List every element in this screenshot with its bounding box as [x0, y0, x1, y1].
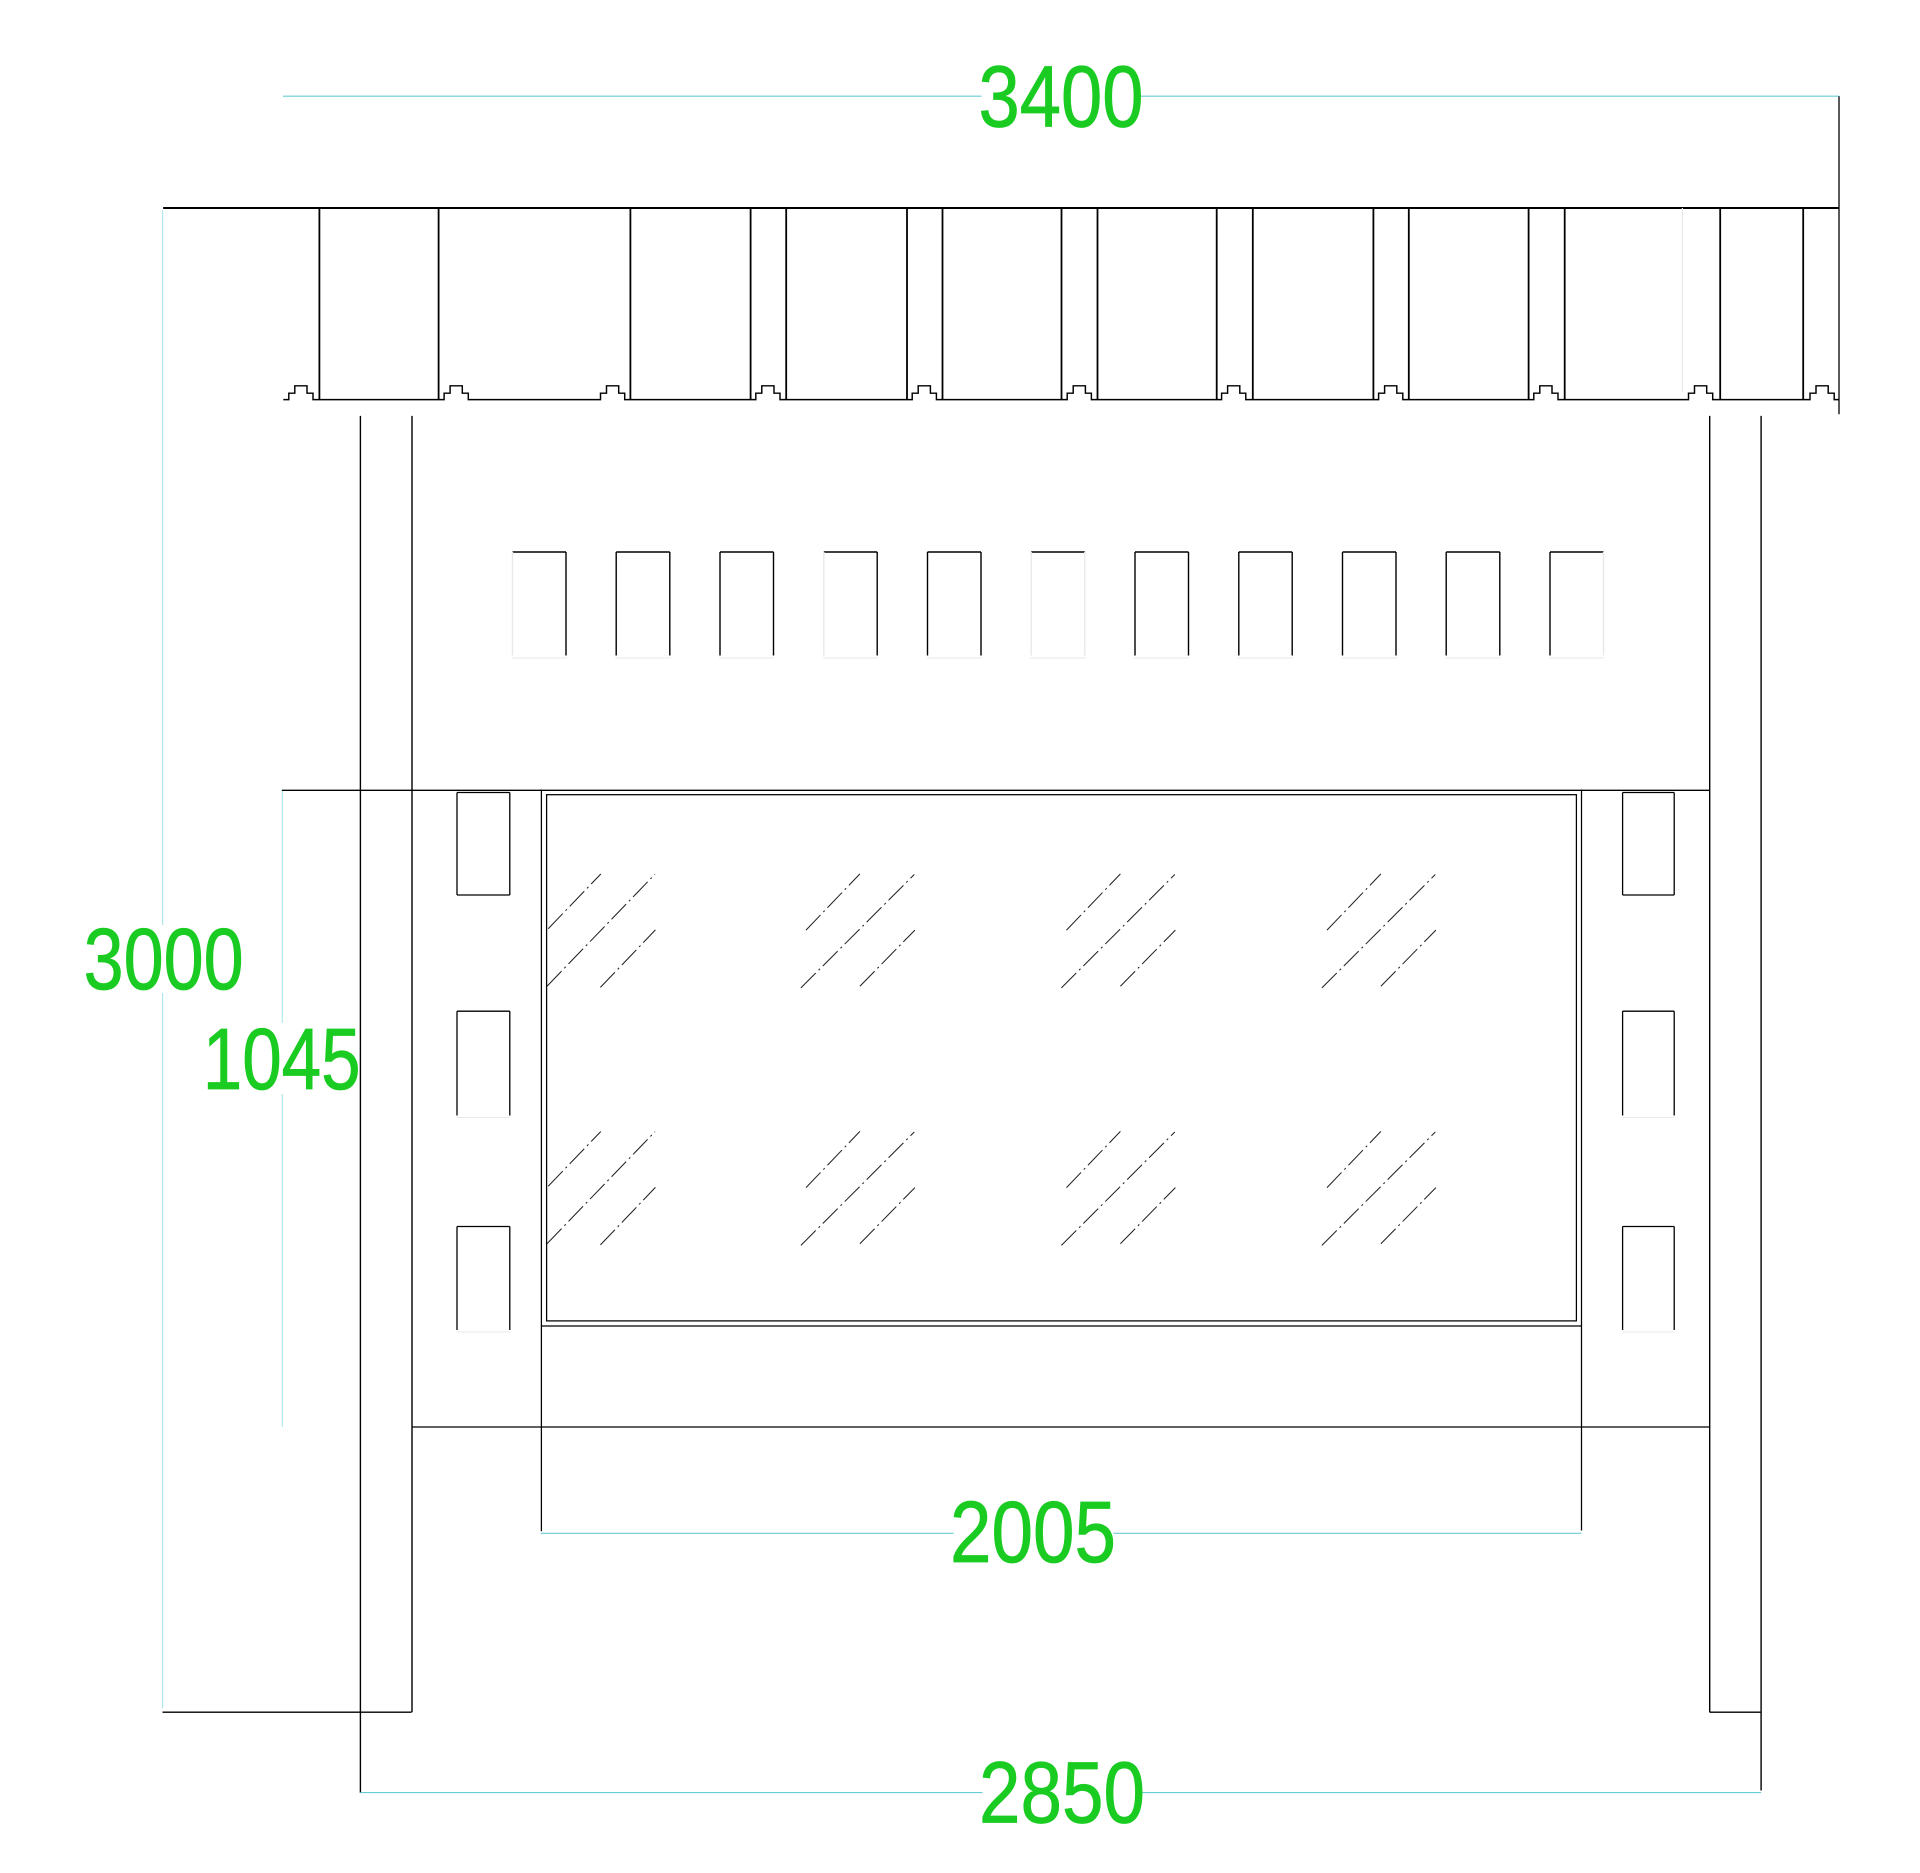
- svg-text:1045: 1045: [203, 1011, 361, 1108]
- svg-text:3400: 3400: [979, 49, 1144, 146]
- svg-text:2850: 2850: [979, 1745, 1145, 1842]
- svg-text:3000: 3000: [84, 911, 244, 1008]
- svg-text:2005: 2005: [950, 1484, 1116, 1581]
